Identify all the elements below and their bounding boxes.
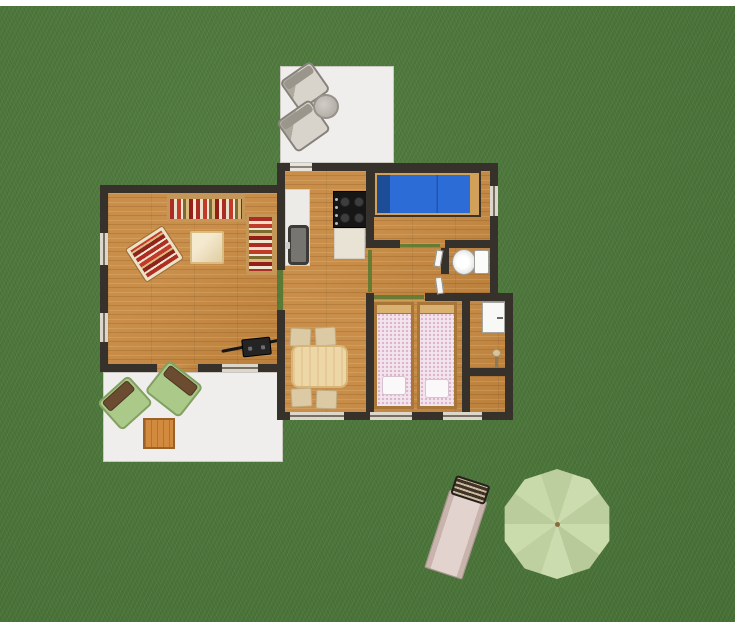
single-bed-pillow — [425, 379, 449, 398]
viewport-margin-bottom — [0, 622, 739, 630]
window-living-bottom[interactable] — [222, 364, 258, 372]
wall-utility-divider[interactable] — [470, 368, 505, 376]
wood-stove[interactable] — [241, 337, 272, 358]
coffee-table[interactable] — [190, 231, 224, 264]
window-living-left-2[interactable] — [100, 313, 108, 342]
dining-chair-2[interactable] — [315, 326, 337, 346]
wall-bottom-a[interactable] — [277, 412, 290, 420]
single-bed-left[interactable] — [374, 302, 414, 409]
sofa-long[interactable] — [167, 193, 245, 222]
wall-living-left[interactable] — [100, 185, 108, 372]
threshold-double-bedroom — [400, 244, 440, 247]
wall-top-main-b[interactable] — [312, 163, 498, 171]
window-living-left-1[interactable] — [100, 233, 108, 265]
dining-chair-3[interactable] — [291, 387, 313, 407]
wall-living-top[interactable] — [100, 185, 285, 193]
single-bed-pillow — [382, 376, 406, 395]
wall-bottom-c[interactable] — [412, 412, 443, 420]
wall-cabinet[interactable] — [482, 302, 505, 333]
wall-living-bottom-a[interactable] — [100, 364, 157, 372]
entry-door-top[interactable] — [290, 163, 312, 171]
window-bottom-3[interactable] — [443, 412, 482, 420]
wall-bottom-b[interactable] — [344, 412, 370, 420]
single-bed-headboard — [420, 305, 454, 314]
wall-mid-vertical-a[interactable] — [366, 171, 374, 248]
dining-table[interactable] — [291, 345, 348, 388]
threshold-living-dining — [279, 270, 283, 310]
wall-utility-right[interactable] — [505, 293, 513, 420]
toilet-bowl[interactable] — [452, 249, 476, 275]
wall-kitchen-left-b[interactable] — [277, 310, 285, 412]
single-bed-headboard — [377, 305, 411, 314]
wall-mid-vertical-b[interactable] — [366, 293, 374, 412]
viewport-margin-top — [0, 0, 739, 6]
window-bottom-1[interactable] — [290, 412, 344, 420]
floor-plan-canvas — [0, 0, 739, 630]
parasol-center-pole — [555, 522, 560, 527]
kitchen-stove[interactable] — [333, 191, 368, 228]
kitchen-counter-2[interactable] — [334, 228, 365, 259]
threshold-hallway-twin-bedroom — [374, 295, 424, 299]
double-bed-pillow — [377, 175, 390, 213]
square-garden-table[interactable] — [143, 418, 175, 449]
sofa-short[interactable] — [246, 214, 277, 274]
wall-right-upper[interactable] — [490, 163, 498, 300]
wall-bottom-d[interactable] — [482, 412, 513, 420]
faucet — [286, 242, 290, 249]
toilet-tank — [474, 250, 489, 274]
double-bed-mattress — [390, 175, 470, 213]
window-bottom-2[interactable] — [370, 412, 412, 420]
wall-bedroom-corridor-a[interactable] — [374, 240, 400, 248]
double-bed[interactable] — [373, 171, 481, 217]
single-bed-right[interactable] — [417, 302, 457, 409]
round-garden-table[interactable] — [313, 94, 339, 119]
wall-kitchen-left-a[interactable] — [277, 163, 285, 270]
window-bedroom-right[interactable] — [490, 186, 498, 216]
viewport-margin-right — [735, 0, 739, 630]
kitchen-sink[interactable] — [288, 225, 309, 265]
wall-twin-right[interactable] — [462, 300, 470, 412]
dining-chair-4[interactable] — [316, 390, 338, 410]
threshold-kitchen-hallway — [368, 250, 372, 292]
